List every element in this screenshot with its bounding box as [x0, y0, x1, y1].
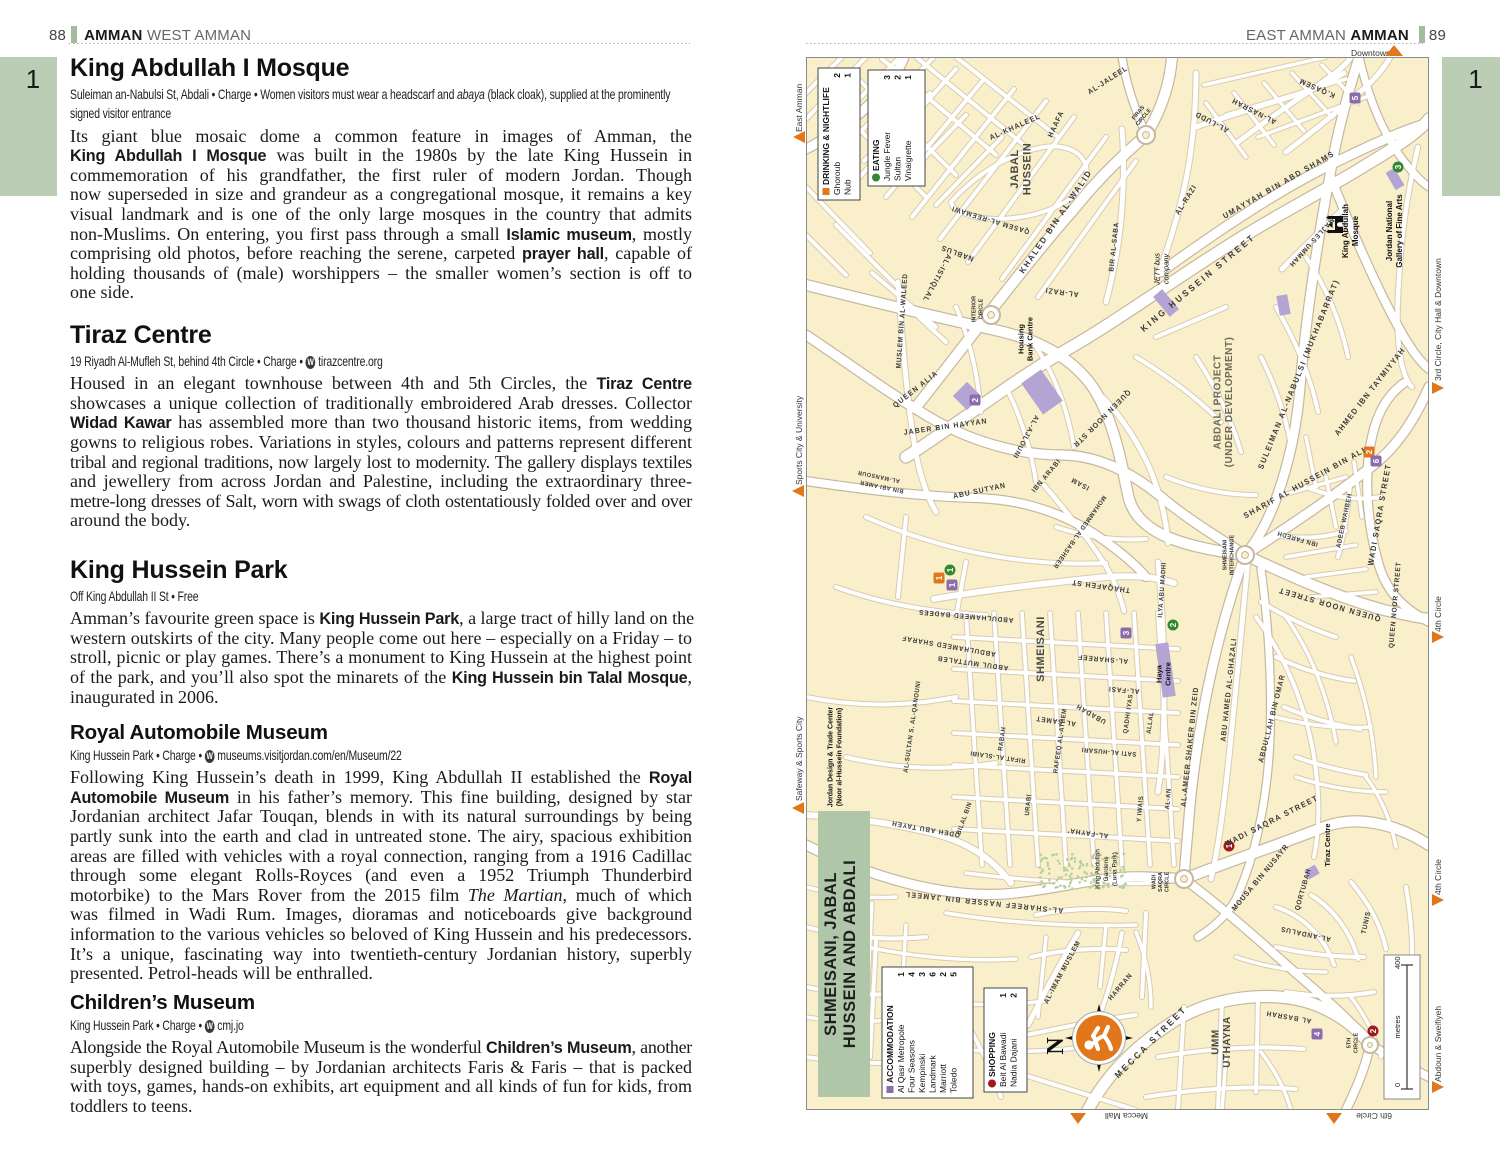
svg-text:2: 2 [1369, 1028, 1378, 1033]
svg-text:Abdoun & Sweifiyeh: Abdoun & Sweifiyeh [1433, 1006, 1443, 1082]
svg-text:Centre: Centre [1164, 662, 1173, 686]
svg-text:DRINKING & NIGHTLIFE: DRINKING & NIGHTLIFE [821, 87, 831, 185]
svg-text:4th Circle: 4th Circle [1433, 596, 1443, 632]
svg-text:SHMEISANI: SHMEISANI [1223, 539, 1229, 570]
svg-text:3: 3 [882, 75, 892, 80]
svg-text:metres: metres [1393, 1015, 1402, 1038]
svg-text:Gardens: Gardens [1103, 856, 1110, 882]
svg-text:1: 1 [948, 582, 957, 587]
svg-text:Al Qasr Metropole: Al Qasr Metropole [896, 1024, 906, 1093]
svg-text:Sultan: Sultan [893, 157, 903, 181]
svg-text:HUSSEIN AND ABDALI: HUSSEIN AND ABDALI [841, 860, 859, 1048]
svg-text:SHMEISANI: SHMEISANI [1035, 616, 1047, 682]
svg-text:Mosque: Mosque [1351, 215, 1360, 246]
svg-text:2: 2 [1169, 622, 1178, 627]
svg-text:N: N [1043, 1037, 1069, 1055]
svg-text:Housing: Housing [1016, 324, 1025, 354]
svg-text:2: 2 [832, 73, 842, 78]
svg-text:2: 2 [938, 972, 948, 977]
svg-text:Bank Centre: Bank Centre [1026, 317, 1035, 361]
svg-text:JETT bus: JETT bus [1152, 253, 1161, 286]
svg-text:1: 1 [946, 567, 955, 572]
svg-text:Sports City & University: Sports City & University [794, 395, 804, 485]
svg-text:6: 6 [1372, 458, 1381, 463]
svg-text:(Luna Park): (Luna Park) [1111, 852, 1118, 886]
svg-text:Toledo: Toledo [949, 1068, 959, 1093]
svg-text:WADI: WADI [1151, 874, 1157, 889]
svg-text:5TH: 5TH [1347, 1038, 1353, 1048]
svg-text:EATING: EATING [871, 139, 881, 171]
svg-text:6: 6 [928, 972, 938, 977]
svg-text:Nub: Nub [843, 179, 853, 195]
svg-text:Marriott: Marriott [938, 1064, 948, 1093]
svg-text:Kempinski: Kempinski [917, 1054, 927, 1093]
svg-text:1: 1 [998, 993, 1008, 998]
svg-text:1: 1 [903, 75, 913, 80]
svg-text:1: 1 [896, 972, 906, 977]
svg-text:(UNDER DEVELOPMENT): (UNDER DEVELOPMENT) [1224, 337, 1235, 468]
svg-text:Gallery of Fine Arts: Gallery of Fine Arts [1395, 194, 1404, 268]
svg-text:JABAL: JABAL [1009, 149, 1021, 188]
svg-text:Jordan National: Jordan National [1385, 201, 1394, 261]
svg-text:Beit Al Bawadi: Beit Al Bawadi [998, 1033, 1008, 1087]
svg-text:ACCOMMODATION: ACCOMMODATION [885, 1005, 895, 1083]
svg-text:Mecca Mall: Mecca Mall [1105, 1111, 1148, 1121]
svg-text:CIRCLE: CIRCLE [978, 298, 984, 319]
svg-text:King Abdullah: King Abdullah [1095, 849, 1102, 889]
svg-text:SHOPPING: SHOPPING [987, 1032, 997, 1077]
svg-text:Nadia Dajani: Nadia Dajani [1009, 1038, 1019, 1087]
svg-text:INTERCHANGE: INTERCHANGE [1229, 535, 1235, 576]
svg-text:INTERIOR: INTERIOR [972, 296, 978, 322]
svg-text:2: 2 [1009, 993, 1019, 998]
svg-text:Four Seasons: Four Seasons [907, 1040, 917, 1093]
svg-text:SHMEISANI, JABAL: SHMEISANI, JABAL [822, 872, 840, 1036]
svg-text:4: 4 [1313, 1031, 1322, 1036]
svg-text:400: 400 [1393, 956, 1402, 969]
svg-text:CIRCLE: CIRCLE [1165, 871, 1171, 892]
svg-text:company: company [1162, 253, 1171, 285]
svg-text:3: 3 [917, 972, 927, 977]
svg-text:2: 2 [971, 397, 980, 402]
svg-text:King Abdullah: King Abdullah [1341, 204, 1350, 258]
svg-text:UMM: UMM [1210, 1029, 1221, 1054]
svg-text:3: 3 [1122, 630, 1131, 635]
svg-text:Safeway & Sports City: Safeway & Sports City [794, 716, 804, 801]
svg-text:Vinaigrette: Vinaigrette [903, 140, 913, 181]
svg-text:HUSSEIN: HUSSEIN [1021, 143, 1033, 195]
svg-text:3rd Circle, City Hall & Downto: 3rd Circle, City Hall & Downtown [1433, 258, 1443, 381]
svg-text:1: 1 [843, 73, 853, 78]
svg-text:5: 5 [1351, 95, 1360, 100]
svg-text:(Noor al-Hussein Foundation): (Noor al-Hussein Foundation) [836, 708, 843, 806]
svg-text:4: 4 [907, 972, 917, 977]
svg-text:Tiraz Centre: Tiraz Centre [1323, 823, 1332, 866]
svg-text:5: 5 [949, 972, 959, 977]
svg-text:4th Circle: 4th Circle [1433, 859, 1443, 895]
svg-text:Ghoroub: Ghoroub [832, 162, 842, 195]
svg-text:CIRCLE: CIRCLE [1353, 1032, 1359, 1053]
svg-text:3: 3 [1394, 164, 1403, 169]
svg-text:0: 0 [1393, 1083, 1402, 1087]
svg-text:Jungle Fever: Jungle Fever [882, 132, 892, 181]
svg-text:SAQRA: SAQRA [1158, 872, 1164, 892]
svg-text:1: 1 [935, 575, 944, 580]
svg-text:Jordan Design & Trade Center: Jordan Design & Trade Center [828, 707, 835, 808]
svg-text:2: 2 [893, 75, 903, 80]
svg-text:Landmark: Landmark [928, 1054, 938, 1093]
svg-text:UTHAYNA: UTHAYNA [1222, 1016, 1233, 1067]
svg-text:6th Circle: 6th Circle [1356, 1111, 1392, 1121]
svg-text:East Amman: East Amman [794, 84, 804, 132]
svg-text:ABDALI PROJECT: ABDALI PROJECT [1212, 355, 1223, 450]
svg-text:Haya: Haya [1154, 664, 1163, 683]
